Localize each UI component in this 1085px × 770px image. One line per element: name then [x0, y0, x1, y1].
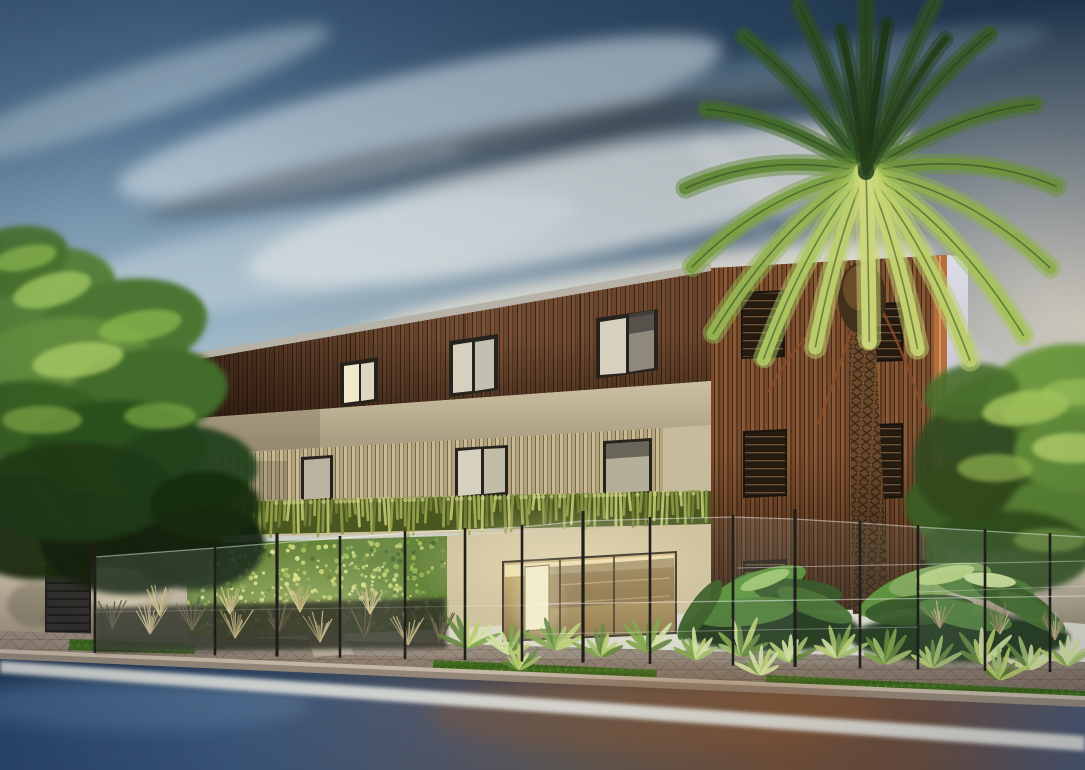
- architectural-render: [0, 0, 1085, 770]
- vignette: [0, 0, 1085, 770]
- scene-canvas: [0, 0, 1085, 770]
